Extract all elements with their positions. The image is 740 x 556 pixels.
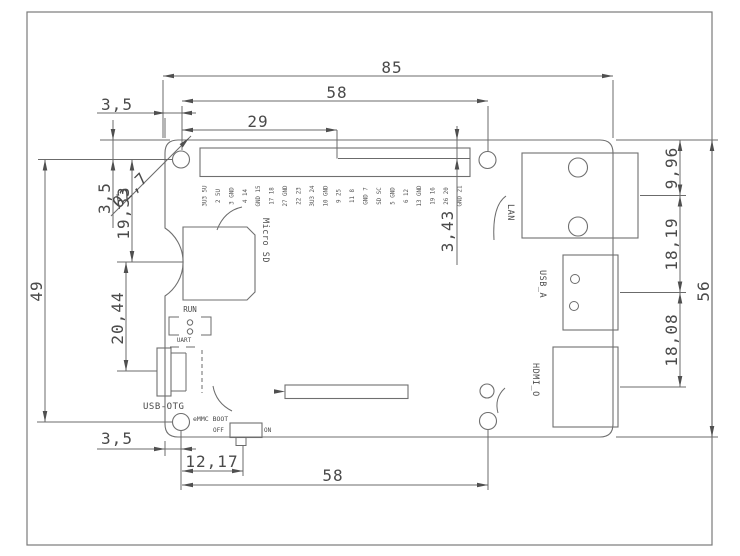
- arrowhead: [163, 74, 174, 79]
- gpio-pin-label: 22 23: [296, 187, 302, 205]
- dim-hole-offset-left-bottom: 3,5: [101, 429, 133, 448]
- dim-hole-span-bottom: 58: [322, 466, 343, 485]
- gpio-pin-label: 6 12: [404, 189, 410, 203]
- gpio-pin-label: 26 20: [444, 187, 450, 205]
- arrowhead: [477, 483, 488, 488]
- dim-notch-to-usb: 20,44: [108, 291, 127, 344]
- gpio-pin-label: 17 18: [270, 187, 276, 205]
- usb-a-pad: [570, 302, 579, 311]
- leader-arc-emmc: [213, 386, 232, 411]
- arrowhead: [455, 129, 460, 140]
- lan-post: [569, 217, 588, 236]
- arrowhead: [124, 262, 129, 273]
- dim-lan-to-usba: 18,19: [662, 217, 681, 270]
- dim-usba-to-hdmi: 18,08: [662, 313, 681, 366]
- dim-total-width: 85: [381, 58, 402, 77]
- usb-otg-label: USB-OTG: [143, 402, 184, 412]
- usb-a-pad: [571, 275, 580, 284]
- gpio-pin-label: 10 GND: [323, 185, 329, 206]
- mounting-hole-top-left: [173, 151, 190, 168]
- dim-hole-to-switch: 12,17: [185, 452, 238, 471]
- bottom-header: [285, 385, 408, 399]
- arrowhead: [678, 293, 683, 304]
- arrowhead: [678, 376, 683, 387]
- gpio-pin-label: GND 21: [458, 185, 464, 206]
- usb-a-connector: [563, 255, 618, 330]
- micro-sd-slot: [183, 227, 255, 300]
- dimension-lines: [37, 76, 718, 490]
- run-pad: [187, 320, 192, 325]
- pcb-dimension-drawing: 3U3 5U2 5U3 GND4 14GND 1517 1827 GND22 2…: [0, 0, 740, 556]
- usb-otg-connector: [157, 348, 171, 396]
- lan-connector: [522, 153, 638, 238]
- gpio-pin-label: 2 5U: [216, 189, 222, 203]
- dim-hole-to-notch: 19,33: [114, 186, 133, 239]
- emmc-boot-switch-tab: [236, 438, 246, 446]
- run-bracket-right: [201, 317, 211, 335]
- gpio-pin-label: 3 GND: [229, 187, 235, 205]
- dim-top-to-lan: 9,96: [662, 147, 681, 190]
- arrowhead: [182, 99, 193, 104]
- gpio-pin-label: 19 16: [431, 187, 437, 205]
- arrowhead: [274, 389, 285, 394]
- dim-edge-to-pin-row: 3,43: [438, 210, 457, 253]
- arrowhead: [154, 447, 165, 452]
- gpio-pin-label: GND 7: [364, 187, 370, 205]
- drawing-svg: 3U3 5U2 5U3 GND4 14GND 1517 1827 GND22 2…: [0, 0, 740, 556]
- arrowhead: [124, 360, 129, 371]
- gpio-pin-label: 13 GND: [417, 185, 423, 206]
- sheet-frame: [27, 12, 712, 545]
- dim-hole-span-top: 58: [326, 83, 347, 102]
- micro-sd-label: Micro SD: [260, 218, 270, 263]
- arrowhead: [602, 74, 613, 79]
- arrowhead: [43, 411, 48, 422]
- mounting-hole-bottom-right: [480, 413, 497, 430]
- gpio-pin-label: 5 GND: [390, 187, 396, 205]
- arrowhead: [477, 99, 488, 104]
- leader-arc-lan: [494, 196, 506, 240]
- arrowhead: [678, 282, 683, 293]
- arrowhead: [182, 483, 193, 488]
- uart-label: UART: [177, 337, 192, 344]
- dim-hole-offset-left-top: 3,5: [101, 95, 133, 114]
- run-label: RUN: [183, 305, 197, 314]
- arrowhead: [710, 140, 715, 151]
- gpio-pin-label: GND 15: [256, 185, 262, 206]
- emmc-boot-switch: [230, 423, 262, 438]
- gpio-pin-label: 27 GND: [283, 185, 289, 206]
- hdmi-label: HDMI_O: [530, 363, 540, 397]
- dim-header-offset-x: 29: [247, 112, 268, 131]
- gpio-header: [200, 148, 470, 177]
- mounting-hole-bottom-left: [173, 414, 190, 431]
- arrowhead: [326, 128, 337, 133]
- emmc-on-label: ON: [264, 427, 272, 434]
- usb-a-label: USB_A: [537, 270, 547, 298]
- leader-arc-holes: [497, 388, 505, 413]
- emmc-boot-label: eMMC BOOT: [193, 415, 228, 423]
- run-bracket-left: [169, 317, 179, 335]
- arrowhead: [455, 159, 460, 170]
- mounting-hole-top-right: [479, 152, 496, 169]
- gpio-pin-labels: 3U3 5U2 5U3 GND4 14GND 1517 1827 GND22 2…: [203, 185, 464, 206]
- dimension-arrows: [43, 74, 715, 488]
- hole-bottom-right-upper: [480, 384, 494, 398]
- lan-post: [569, 158, 588, 177]
- arrowhead: [130, 251, 135, 262]
- gpio-pin-label: 11 8: [350, 189, 356, 203]
- dim-total-height: 56: [694, 280, 713, 301]
- arrowhead: [130, 160, 135, 171]
- gpio-pin-label: SD SC: [377, 187, 383, 205]
- arrowhead: [181, 447, 192, 452]
- gpio-pin-label: 3U3 24: [310, 185, 316, 206]
- arrowhead: [43, 160, 48, 171]
- arrowhead: [181, 111, 192, 116]
- gpio-pin-label: 3U3 5U: [203, 185, 209, 206]
- arrowhead: [710, 426, 715, 437]
- arrowhead: [678, 196, 683, 207]
- arrowhead: [111, 160, 116, 171]
- arrowhead: [111, 129, 116, 140]
- arrowhead: [180, 136, 191, 147]
- hdmi-connector: [553, 347, 618, 427]
- arrowhead: [182, 128, 193, 133]
- emmc-off-label: OFF: [213, 427, 224, 434]
- dim-hole-span-left: 49: [27, 280, 46, 301]
- lan-label: LAN: [505, 204, 515, 221]
- gpio-pin-label: 9 25: [337, 189, 343, 203]
- run-pad: [187, 329, 192, 334]
- gpio-pin-label: 4 14: [243, 189, 249, 203]
